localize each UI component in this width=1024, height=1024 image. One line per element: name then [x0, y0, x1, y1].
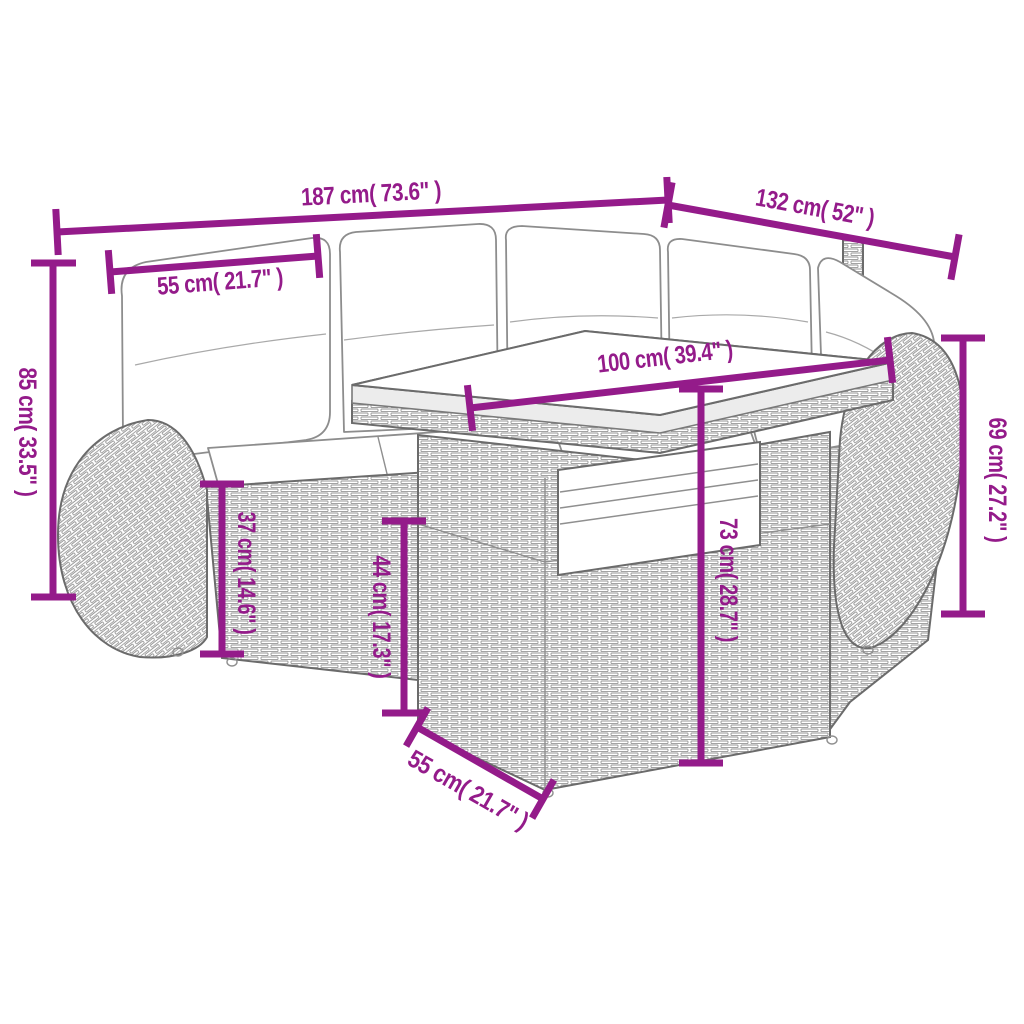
- sofa-left-arm: [58, 420, 207, 658]
- dimension-label: 44 cm( 17.3" ): [367, 556, 395, 679]
- furniture-illustration: [58, 224, 963, 797]
- dimension-label: 73 cm( 28.7" ): [714, 518, 742, 642]
- diagram-canvas: 187 cm( 73.6" ) 132 cm( 52" ) 55 cm( 21.…: [0, 0, 1024, 1024]
- dimension-label: 85 cm( 33.5" ): [13, 368, 41, 497]
- dimension-label: 187 cm( 73.6" ): [300, 176, 441, 211]
- dimension-label: 69 cm( 27.2" ): [983, 418, 1011, 543]
- dimension-diagram: 187 cm( 73.6" ) 132 cm( 52" ) 55 cm( 21.…: [0, 0, 1024, 1024]
- dimension-label: 37 cm( 14.6" ): [232, 512, 260, 635]
